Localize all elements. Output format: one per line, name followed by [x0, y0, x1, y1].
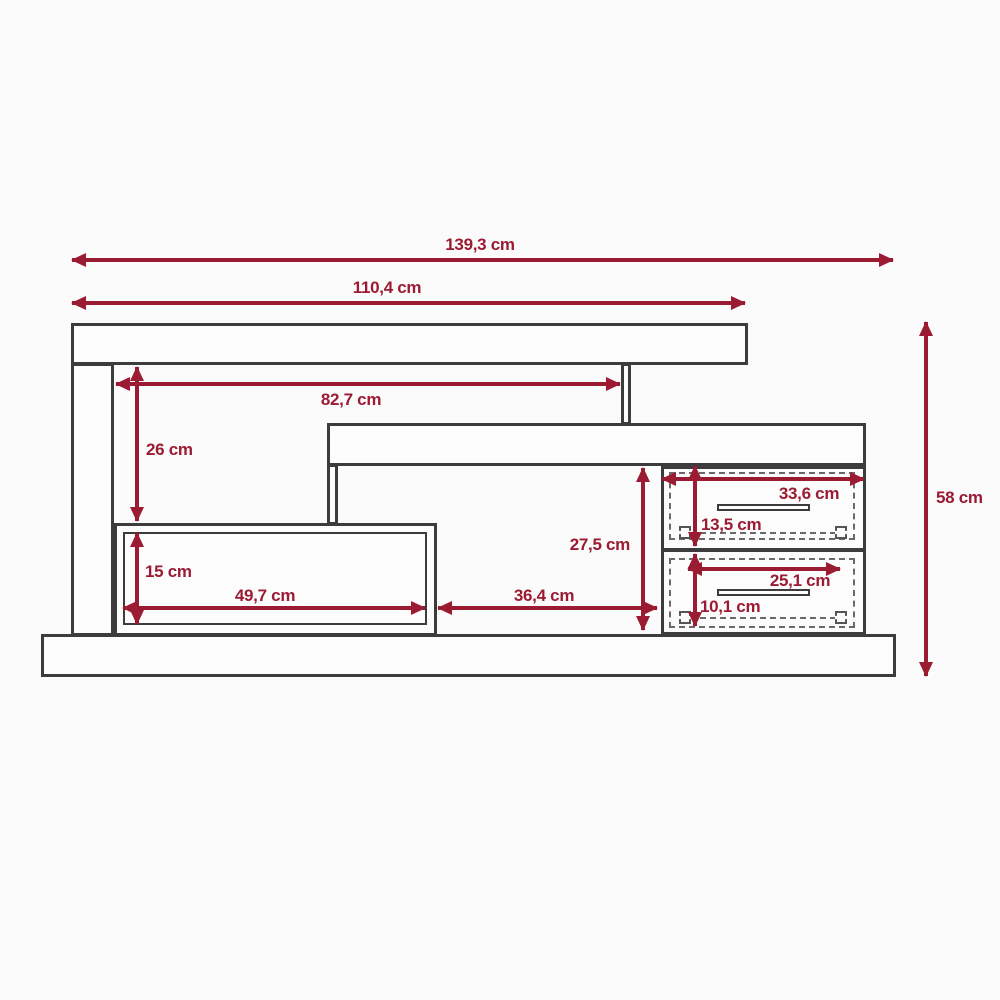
dim-arrow-middle-gap-width	[438, 606, 657, 610]
drawer-divider	[661, 548, 866, 552]
dim-label-shelf-opening-width: 49,7 cm	[235, 587, 295, 604]
dim-arrow-total-height	[924, 322, 928, 676]
center-support	[621, 363, 631, 425]
dim-label-bottom-drawer-height: 10,1 cm	[700, 598, 760, 615]
bottom-drawer-slide-line	[680, 617, 846, 619]
dim-arrow-total-width	[72, 258, 893, 262]
dim-arrow-inner-width	[116, 382, 620, 386]
dim-label-total-width: 139,3 cm	[445, 236, 514, 253]
dim-label-middle-gap-width: 36,4 cm	[514, 587, 574, 604]
dim-label-top-drawer-width: 33,6 cm	[779, 485, 839, 502]
dim-arrow-drawer-section-height	[641, 468, 645, 630]
dim-label-upper-width: 110,4 cm	[353, 279, 422, 296]
left-side-panel	[71, 363, 114, 636]
bottom-drawer-slide-right	[835, 611, 847, 624]
middle-shelf-panel	[327, 423, 866, 466]
dim-label-bottom-drawer-width: 25,1 cm	[770, 572, 830, 589]
dim-arrow-shelf-opening-width	[123, 606, 425, 610]
dim-arrow-shelf-opening-height	[135, 533, 139, 624]
dim-arrow-top-drawer-height	[693, 466, 697, 546]
dim-label-upper-opening-height: 26 cm	[146, 441, 193, 458]
bottom-drawer-handle	[717, 589, 810, 596]
dimension-drawing: 139,3 cm 110,4 cm 82,7 cm 26 cm 15 cm 49…	[0, 0, 1000, 1000]
top-panel	[71, 323, 748, 365]
middle-shelf-support	[327, 464, 338, 525]
top-drawer-slide-right	[835, 526, 847, 539]
dim-label-top-drawer-height: 13,5 cm	[701, 516, 761, 533]
dim-arrow-upper-opening-height	[135, 367, 139, 521]
dim-label-total-height: 58 cm	[936, 489, 983, 506]
dim-label-drawer-section-height: 27,5 cm	[570, 536, 630, 553]
dim-label-shelf-opening-height: 15 cm	[145, 563, 192, 580]
dim-label-inner-width: 82,7 cm	[321, 391, 381, 408]
plinth-base	[41, 634, 896, 677]
top-drawer-handle	[717, 504, 810, 511]
dim-arrow-bottom-drawer-height	[693, 554, 697, 626]
dim-arrow-upper-width	[72, 301, 745, 305]
